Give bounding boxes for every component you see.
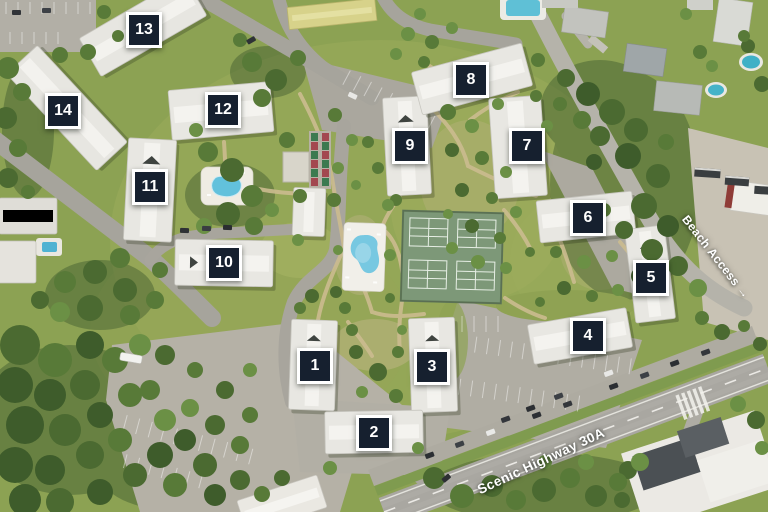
building-number: 3	[428, 359, 437, 375]
building-marker-6[interactable]: 6	[570, 200, 606, 236]
building-number: 8	[467, 72, 476, 88]
building-number: 10	[215, 255, 233, 271]
building-number: 12	[214, 102, 232, 118]
building-number: 11	[142, 179, 159, 195]
building-marker-12[interactable]: 12	[205, 92, 241, 128]
building-marker-4[interactable]: 4	[570, 318, 606, 354]
building-marker-7[interactable]: 7	[509, 128, 545, 164]
building-marker-8[interactable]: 8	[453, 62, 489, 98]
building-marker-2[interactable]: 2	[356, 415, 392, 451]
building-marker-1[interactable]: 1	[297, 348, 333, 384]
building-number: 6	[584, 210, 593, 226]
building-marker-14[interactable]: 14	[45, 93, 81, 129]
building-marker-9[interactable]: 9	[392, 128, 428, 164]
building-number: 9	[406, 138, 415, 154]
building-marker-3[interactable]: 3	[414, 349, 450, 385]
building-marker-11[interactable]: 11	[132, 169, 168, 205]
building-marker-10[interactable]: 10	[206, 245, 242, 281]
building-number: 13	[135, 22, 153, 38]
building-number: 2	[370, 425, 379, 441]
building-marker-13[interactable]: 13	[126, 12, 162, 48]
building-number: 14	[54, 103, 72, 119]
road-label-scenic-highway-30a: Scenic Highway 30A	[475, 425, 607, 497]
building-marker-5[interactable]: 5	[633, 260, 669, 296]
aerial-site-map: 1234567891011121314Beach Access →Scenic …	[0, 0, 768, 512]
marker-layer: 1234567891011121314Beach Access →Scenic …	[0, 0, 768, 512]
building-number: 1	[311, 358, 320, 374]
building-number: 5	[647, 270, 656, 286]
building-number: 4	[584, 328, 593, 344]
building-number: 7	[523, 138, 532, 154]
road-label-beach-access: Beach Access →	[679, 213, 753, 302]
